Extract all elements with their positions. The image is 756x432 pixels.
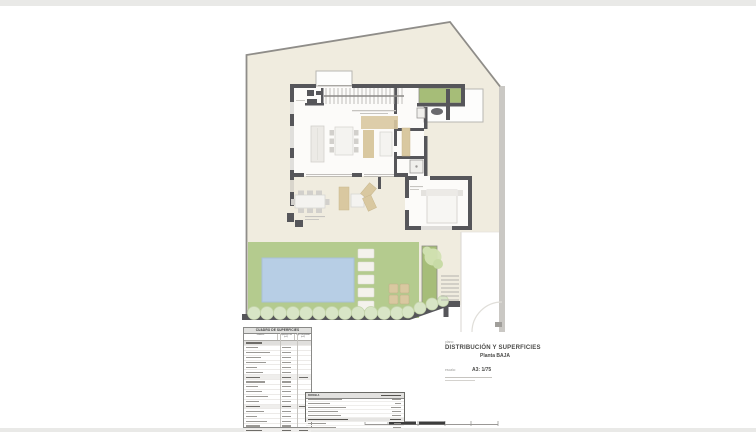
stepping-stones <box>358 249 374 310</box>
scale-value: A3: 1/75 <box>472 367 491 373</box>
side-table <box>351 194 364 207</box>
drawing-subtitle: Planta BAJA <box>445 353 625 359</box>
driveway-arc <box>472 302 502 332</box>
project-info-line <box>445 380 475 381</box>
tv-unit <box>380 132 392 156</box>
drawing-title: DISTRIBUCIÓN Y SUPERFICIES <box>445 345 625 351</box>
hall-wardrobe <box>402 128 410 156</box>
sofa <box>363 130 374 158</box>
sun-lounger <box>339 187 349 210</box>
gate-post <box>495 322 502 327</box>
title-block: plano: DISTRIBUCIÓN Y SUPERFICIES Planta… <box>445 340 625 381</box>
roof-planter <box>419 88 462 103</box>
upper-volume-outline <box>316 71 352 86</box>
floor-plan-canvas <box>0 0 756 432</box>
project-info-line <box>445 377 492 378</box>
parcel-box-rows <box>306 399 404 430</box>
sheet-top-band <box>0 0 756 6</box>
parcel-header-value-bar <box>381 395 401 396</box>
right-boundary-wall <box>499 86 505 332</box>
plano-label: plano: <box>445 340 625 344</box>
escala-label: escala: <box>445 368 472 372</box>
dining-table <box>330 127 359 155</box>
pool <box>262 258 354 302</box>
surfaces-table-rows <box>244 341 311 432</box>
surfaces-table-header: estancia superficie útil (m2) sup. const… <box>244 334 311 341</box>
rug <box>361 116 398 129</box>
bed <box>421 190 463 223</box>
kitchen-island <box>311 126 324 162</box>
parcel-info-box: PARCELA <box>305 392 405 422</box>
drawing-sheet: CUADRO DE SUPERFICIES estancia superfici… <box>0 0 756 432</box>
surfaces-table: CUADRO DE SUPERFICIES estancia superfici… <box>243 327 312 428</box>
list-item <box>306 426 404 430</box>
